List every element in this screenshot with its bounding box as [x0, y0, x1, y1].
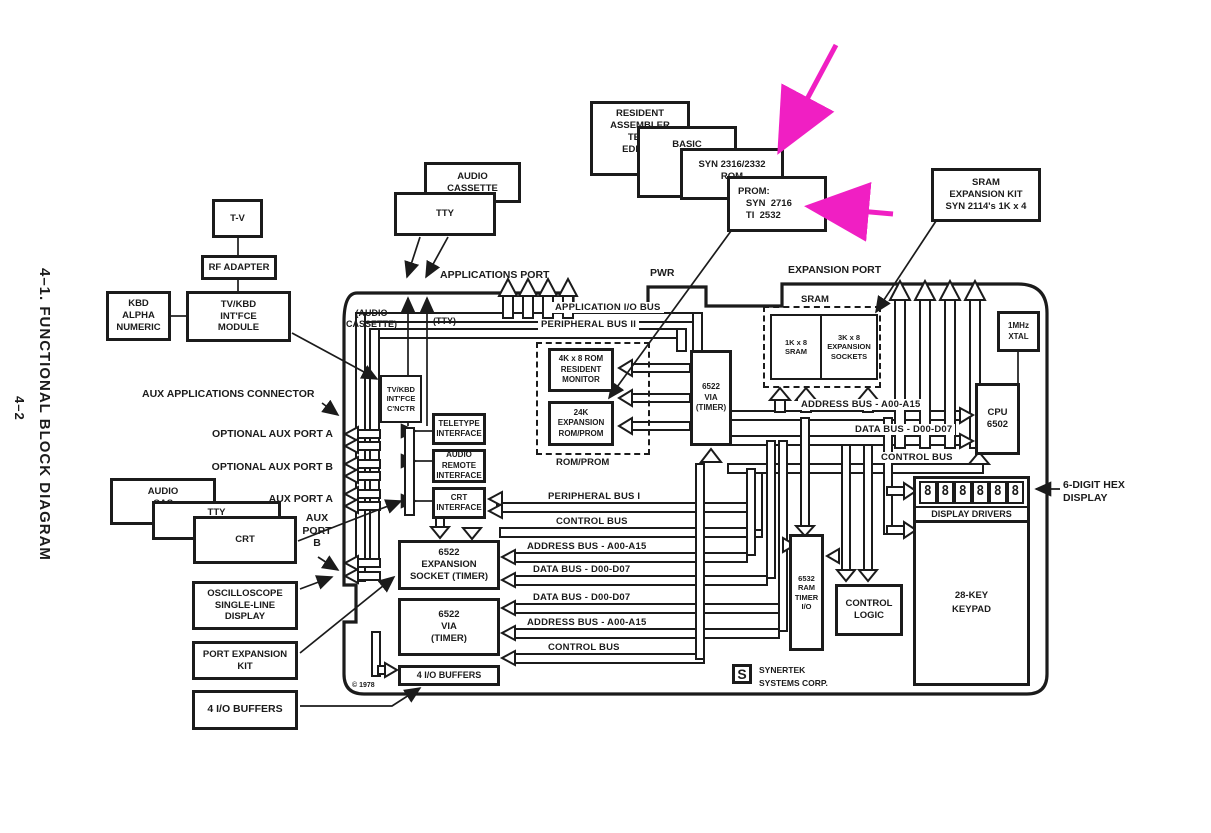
via-2-box: 6522 VIA (TIMER) — [398, 598, 500, 656]
via-1-box: 6522 VIA (TIMER) — [690, 350, 732, 446]
crt-interface-box: CRT INTERFACE — [432, 487, 486, 519]
bus-label-peripheral-2: PERIPHERAL BUS II — [538, 319, 639, 330]
seven-seg-digit: 8 — [1007, 481, 1025, 504]
synertek-name: SYNERTEK SYSTEMS CORP. — [759, 664, 828, 690]
synertek-logo: S — [732, 664, 752, 684]
keypad-box: 28-KEY KEYPAD — [913, 520, 1030, 686]
aux-connector-strip — [404, 427, 415, 516]
teletype-interface-box: TELETYPE INTERFACE — [432, 413, 486, 445]
bus-label-data-2: DATA BUS - D00-D07 — [530, 592, 633, 603]
page-number: 4–2 — [12, 396, 27, 456]
sram-label: SRAM — [799, 294, 831, 305]
bus-label-application-io: APPLICATION I/O BUS — [552, 302, 664, 313]
audio-remote-interface-box: AUDIO REMOTE INTERFACE — [432, 449, 486, 483]
port-expansion-kit-box: PORT EXPANSION KIT — [192, 641, 298, 680]
rom-expansion-box: 24K EXPANSION ROM/PROM — [548, 401, 614, 446]
seven-seg-digit: 8 — [919, 481, 937, 504]
aux-port-b-label: AUX PORT B — [299, 512, 335, 550]
optional-aux-port-b-label: OPTIONAL AUX PORT B — [212, 461, 333, 474]
aux-applications-connector-label: AUX APPLICATIONS CONNECTOR — [142, 388, 314, 401]
sram-expansion-kit-box: SRAM EXPANSION KIT SYN 2114's 1K x 4 — [931, 168, 1041, 222]
bus-label-peripheral-1: PERIPHERAL BUS I — [545, 491, 643, 502]
rf-adapter-box: RF ADAPTER — [201, 255, 277, 280]
tv-kbd-cnctr-box: TV/KBD INT'FCE C'NCTR — [380, 375, 422, 423]
sram-1k-box: 1K x 8 SRAM — [770, 314, 822, 380]
hex-display-label: 6-DIGIT HEX DISPLAY — [1063, 479, 1125, 504]
functional-block-diagram: T-V RF ADAPTER KBD ALPHA NUMERIC TV/KBD … — [0, 0, 1211, 833]
io-buffers-internal-box: 4 I/O BUFFERS — [398, 665, 500, 686]
pwr-label: PWR — [650, 267, 675, 280]
display-keypad-stack: 8 8 8 8 8 8 DISPLAY DRIVERS 28-KEY KEYPA… — [913, 476, 1030, 686]
tv-kbd-intfce-module-box: TV/KBD INT'FCE MODULE — [186, 291, 291, 342]
rom-monitor-box: 4K x 8 ROM RESIDENT MONITOR — [548, 348, 614, 392]
aux-port-a-label: AUX PORT A — [269, 493, 333, 506]
copyright: © 1978 — [352, 682, 375, 690]
seven-seg-digit: 8 — [954, 481, 972, 504]
bus-label-address-cpu: ADDRESS BUS - A00-A15 — [798, 399, 923, 410]
bus-label-address-1: ADDRESS BUS - A00-A15 — [524, 541, 649, 552]
bus-label-control-cpu: CONTROL BUS — [878, 452, 956, 463]
oscilloscope-box: OSCILLOSCOPE SINGLE-LINE DISPLAY — [192, 581, 298, 630]
bus-label-control-bottom: CONTROL BUS — [545, 642, 623, 653]
optional-aux-port-a-label: OPTIONAL AUX PORT A — [212, 428, 333, 441]
bus-label-data-1: DATA BUS - D00-D07 — [530, 564, 633, 575]
audio-cassette-internal-label: (AUDIO CASSETTE) — [346, 308, 397, 330]
control-logic-box: CONTROL LOGIC — [835, 584, 903, 636]
expansion-port-label: EXPANSION PORT — [788, 264, 881, 277]
seven-seg-digit: 8 — [972, 481, 990, 504]
prom-box: PROM: SYN 2716 TI 2532 — [727, 176, 827, 232]
cpu-box: CPU 6502 — [975, 383, 1020, 455]
io-buffers-external-box: 4 I/O BUFFERS — [192, 690, 298, 730]
bus-label-data-cpu: DATA BUS - D00-D07 — [852, 424, 955, 435]
applications-port-label: APPLICATIONS PORT — [440, 269, 549, 282]
seven-seg-digit: 8 — [937, 481, 955, 504]
hex-display-digits: 8 8 8 8 8 8 — [913, 476, 1030, 509]
tty-internal-label: (TTY) — [433, 316, 456, 327]
seven-seg-digit: 8 — [989, 481, 1007, 504]
expansion-socket-box: 6522 EXPANSION SOCKET (TIMER) — [398, 540, 500, 590]
tv-box: T-V — [212, 199, 263, 238]
crt-box: CRT — [193, 516, 297, 564]
kbd-alpha-numeric-box: KBD ALPHA NUMERIC — [106, 291, 171, 341]
sram-3k-box: 3K x 8 EXPANSION SOCKETS — [820, 314, 878, 380]
tty-box: TTY — [394, 192, 496, 236]
ram-6532-box: 6532 RAM TIMER I/O — [789, 534, 824, 651]
side-title: 4–1. FUNCTIONAL BLOCK DIAGRAM — [36, 268, 53, 628]
xtal-box: 1MHz XTAL — [997, 311, 1040, 352]
bus-label-address-2: ADDRESS BUS - A00-A15 — [524, 617, 649, 628]
bus-label-control-mid: CONTROL BUS — [553, 516, 631, 527]
rom-prom-label: ROM/PROM — [556, 457, 609, 468]
